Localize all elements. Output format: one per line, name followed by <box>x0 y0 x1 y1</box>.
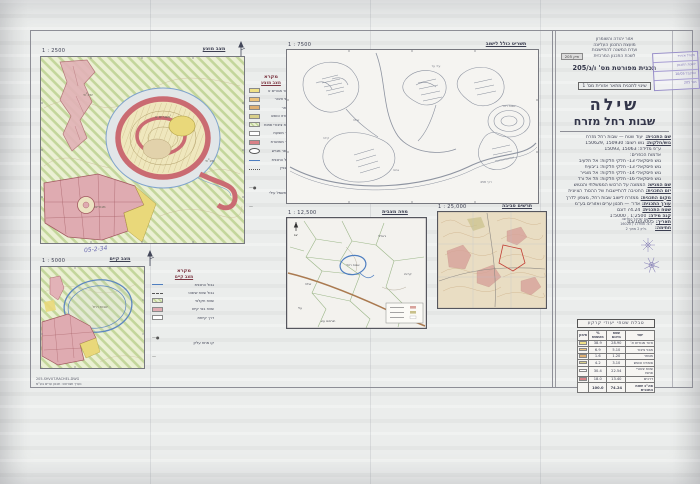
vicinity-map: שבות רחל שילה עלי ג'אלוד קריות תורמוס עי… <box>286 217 427 329</box>
proposed-plan-map: שצ"פ מגורים א' מגורים שצ"פ <box>40 56 245 244</box>
legend-item: גבול התכנית <box>152 282 216 287</box>
label-overall: תשריט כולל לישוב <box>475 42 537 47</box>
legend-swatch <box>249 114 260 119</box>
svg-text:שצ"פ: שצ"פ <box>83 92 93 97</box>
svg-text:שבות רחל: שבות רחל <box>503 104 516 108</box>
land-use-swatch <box>579 361 587 365</box>
legend-swatch <box>152 315 163 320</box>
label-vicinity: מפה מצבית <box>365 210 425 215</box>
area-table-header: יעוד שטח בדונם % מהשטח סימון <box>578 330 655 340</box>
land-use-swatch <box>579 377 587 381</box>
legend-swatch <box>249 169 260 170</box>
svg-text:קידה: קידה <box>323 136 329 140</box>
land-use-swatch <box>579 341 587 345</box>
label-proposed: מצב מוצע <box>196 47 232 52</box>
legend-subtitle: מצב קיים <box>152 274 216 279</box>
legend-existing: מקרא מצב קיים גבול התכנית גבול שטח שיפוט… <box>152 268 216 366</box>
label-surroundings: תרשים סביבה <box>489 204 545 209</box>
legend-item: שטח בנוי קיים <box>152 307 216 312</box>
svg-text:שצ"פ: שצ"פ <box>205 158 215 163</box>
legend-item: שטח חקלאי <box>152 298 216 303</box>
legend-swatch <box>249 105 260 110</box>
surroundings-topo-map <box>437 211 547 309</box>
area-table-row: שטח ציבורי פתוח 22.54 30.4 <box>578 366 655 376</box>
svg-text:אחיה: אחיה <box>393 168 400 172</box>
land-use-swatch <box>579 354 587 358</box>
scale-vicinity: 1 : 12,500 <box>288 210 317 216</box>
approval-stamp: מינהל אזרחילשכת התכנוןהתקבל 10/05מס' 205 <box>652 51 700 91</box>
stamp-line: מס' 205 <box>655 79 699 90</box>
legend-swatch <box>152 293 163 294</box>
area-table-total: סה"כ שטח התכנית 74.24 100.0 <box>578 383 655 393</box>
legend-swatch <box>249 158 260 163</box>
scale-surroundings: 1 : 25,000 <box>438 204 467 210</box>
svg-text:שילה: שילה <box>353 118 359 122</box>
grid-reference-line: גליון 2 מתוך 2 <box>605 227 667 232</box>
legend-swatch <box>249 140 260 145</box>
svg-text:מגורים: מגורים <box>94 204 106 209</box>
legend-swatch <box>249 174 260 212</box>
area-table-title: טבלת שטחי יעודי קרקע <box>577 319 655 328</box>
plan-title: שילה <box>558 95 671 114</box>
svg-text:מגורים א': מגורים א' <box>155 114 171 119</box>
scale-existing: 1 : 5000 <box>42 258 65 264</box>
divider <box>560 131 669 132</box>
legend-swatch <box>249 148 260 154</box>
grid-reference-note: רשת ישראל החדשהנ.צ. 17550 / 16020גליון 2… <box>605 217 667 231</box>
svg-text:תורמוס עיא: תורמוס עיא <box>321 319 336 323</box>
scale-proposed: 1 : 2500 <box>42 48 65 54</box>
svg-text:שבות רחל: שבות רחל <box>347 263 360 267</box>
scale-overall: 1 : 7500 <box>288 42 311 48</box>
legend-item: דרך קיימת <box>152 315 216 320</box>
svg-text:דרך 458: דרך 458 <box>480 180 492 184</box>
svg-text:שבות רחל: שבות רחל <box>92 305 108 309</box>
overall-settlement-map: שילה עדי עד קידה אחיה שבות רחל דרך 458 <box>286 49 539 204</box>
legend-item: קו מתח עליון <box>152 324 216 362</box>
label-existing: מצב קיים <box>98 257 142 262</box>
plan-subtitle: שבות רחל מזרח <box>558 115 671 128</box>
legend-swatch <box>152 307 163 312</box>
svg-text:צפ': צפ' <box>294 233 299 237</box>
svg-text:קריות: קריות <box>404 272 411 276</box>
compass-doodle-icon <box>640 255 661 279</box>
compass-doodle-icon <box>641 237 655 256</box>
svg-text:ג'אלוד: ג'אלוד <box>378 234 387 238</box>
legend-swatch <box>249 88 260 93</box>
legend-swatch <box>152 298 163 303</box>
svg-text:שילה: שילה <box>305 282 311 286</box>
footer-line: נערך ושורטט: תכנון ערים בע"מ <box>36 382 166 387</box>
land-use-swatch <box>579 348 587 352</box>
svg-text:עדי עד: עדי עד <box>432 64 441 68</box>
legend-swatch <box>249 122 260 127</box>
area-table: טבלת שטחי יעודי קרקע יעוד שטח בדונם % מה… <box>577 319 655 393</box>
land-use-swatch <box>579 369 587 373</box>
drawing-file-note: 205-SHVUT-RACHEL.DWGנערך ושורטט: תכנון ע… <box>36 377 166 386</box>
legend-swatch <box>152 282 163 287</box>
amendment-note: שינוי לתכנית מתאר אזורית מס' 1 <box>578 82 650 90</box>
legend-swatch <box>249 131 260 136</box>
existing-state-map: שבות רחל <box>40 266 145 369</box>
legend-item: גבול שטח שיפוט <box>152 291 216 295</box>
legend-swatch <box>152 324 163 362</box>
svg-text:עלי: עלי <box>298 306 302 310</box>
legend-swatch <box>249 97 260 102</box>
